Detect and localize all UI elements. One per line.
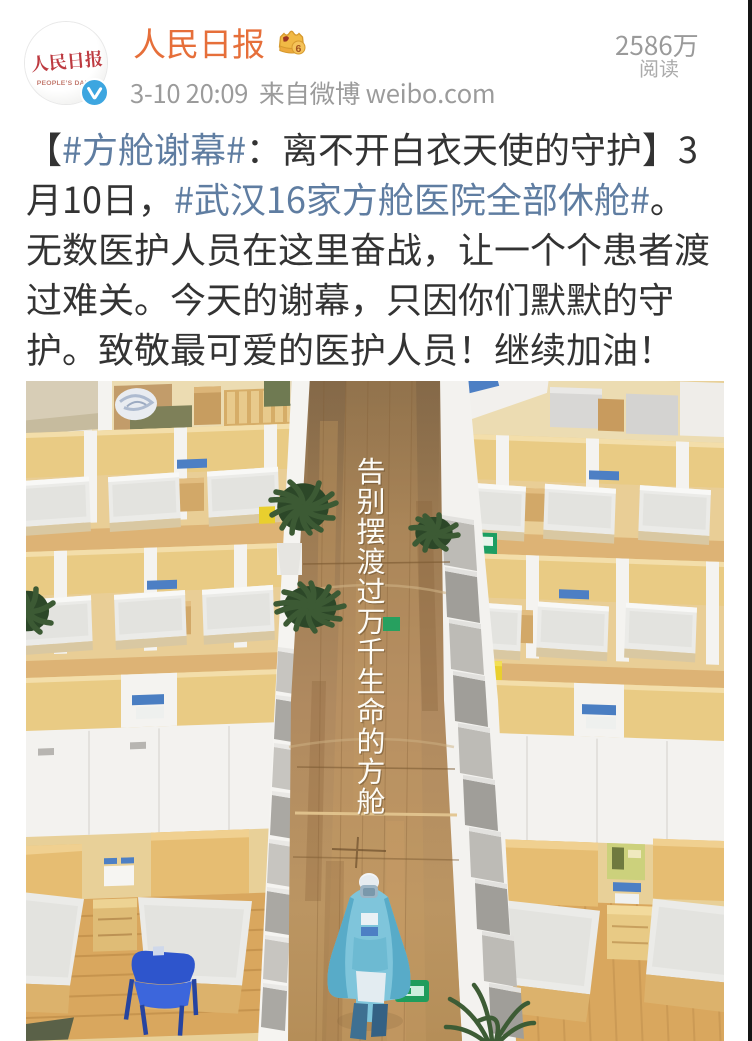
svg-text:6: 6: [296, 43, 302, 55]
